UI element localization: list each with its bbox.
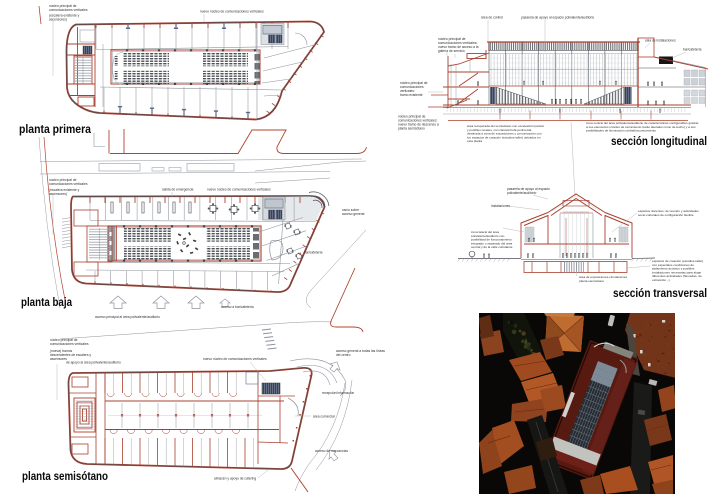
svg-text:nuevo núcleo de comunicaciones: nuevo núcleo de comunicaciones verticale… [200, 10, 264, 14]
svg-text:sección longitudinal: sección longitudinal [611, 134, 707, 148]
svg-text:sala de instalaciones: sala de instalaciones [645, 39, 676, 43]
svg-text:recepción/información: recepción/información [322, 391, 354, 395]
svg-text:woltesgiewymiwanlypeslye: woltesgiewymiwanlypeslye [563, 211, 590, 214]
svg-text:salida de emergencia: salida de emergencia [162, 188, 194, 192]
svg-text:bar/cafetería: bar/cafetería [683, 48, 702, 52]
svg-text:área de control: área de control [481, 16, 503, 20]
svg-text:de apoyo al área polivalente/a: de apoyo al área polivalente/auditorio [66, 361, 121, 365]
svg-text:acceso a bar/cafetería: acceso a bar/cafetería [221, 305, 254, 309]
svg-text:espacios docentes, de reunión: espacios docentes, de reunión y activida… [638, 209, 699, 217]
svg-text:planta baja: planta baja [21, 295, 72, 309]
svg-text:instalaciones: instalaciones [491, 204, 510, 208]
svg-text:planta primera: planta primera [19, 122, 91, 136]
svg-text:sección transversal: sección transversal [613, 286, 707, 300]
svg-text:acceso de mercancías: acceso de mercancías [315, 449, 348, 453]
svg-text:bar/cafetería: bar/cafetería [304, 251, 323, 255]
svg-text:nuevo núcleo de comunicaciones: nuevo núcleo de comunicaciones verticale… [203, 357, 267, 361]
svg-text:planta semisótano: planta semisótano [22, 469, 108, 483]
svg-text:nuevo núcleo de comunicaciones: nuevo núcleo de comunicaciones verticale… [207, 188, 271, 192]
svg-text:acceso principal al área poliv: acceso principal al área polivalente/aud… [95, 315, 160, 319]
svg-text:área comercial: área comercial [313, 415, 335, 419]
svg-text:pasarela de apoyo al espacio p: pasarela de apoyo al espacio polivalente… [521, 16, 594, 20]
svg-text:almacén y apoyo de cátering: almacén y apoyo de cátering [214, 477, 256, 481]
